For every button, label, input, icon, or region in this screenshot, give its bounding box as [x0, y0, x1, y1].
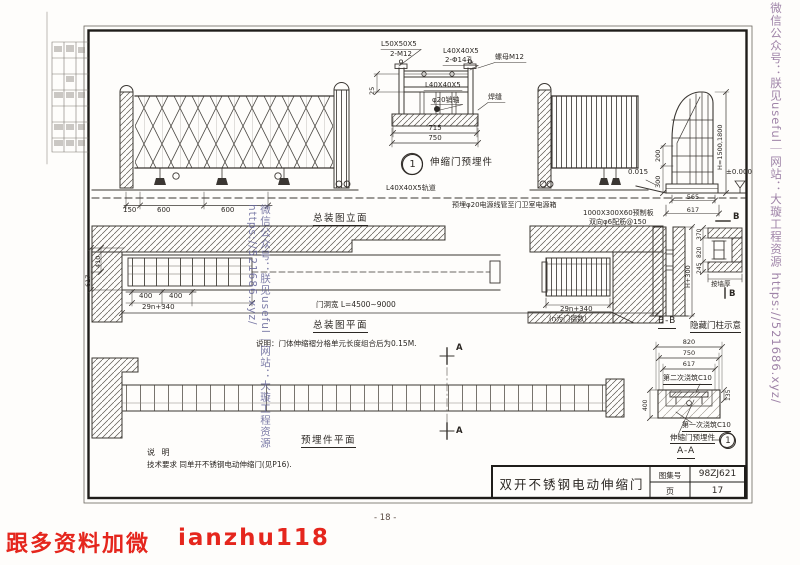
pour-first-label: 第一次浇筑C10	[682, 422, 731, 432]
hidden-post-caption: 隐藏门柱示意	[690, 322, 741, 333]
dim-fold-left: 29n+340	[142, 304, 175, 312]
section-bb-caption: B-B	[658, 317, 676, 329]
page-number-value: 17	[690, 486, 745, 496]
dim-245: 245	[697, 263, 703, 274]
nut-m12-label: 螺母M12	[495, 54, 524, 62]
atlas-number-value: 98ZJ621	[690, 469, 745, 479]
dim-200: 200	[655, 150, 662, 162]
page-label: 页	[650, 486, 690, 497]
plan-note: 说明：门体伸缩褶分格单元长度组合后为0.15M.	[256, 340, 417, 348]
promo-red-text: 跟多资料加微	[6, 526, 150, 558]
dim-h300: H+300	[685, 265, 692, 288]
dim-600-a: 600	[157, 207, 170, 215]
dim-750: 750	[420, 135, 450, 143]
cut-marker-a-top: A	[456, 344, 463, 353]
bolt-m12-label: 2-M12	[390, 51, 412, 59]
aa-callout-number: 1	[725, 436, 730, 446]
cut-marker-b-top: B	[733, 213, 739, 222]
sheet-footer-page: - 18 -	[374, 514, 396, 523]
plan-caption: 总装图平面	[313, 321, 368, 333]
slab-label: 1000X300X60预制板	[583, 210, 654, 218]
dim-750-aa: 750	[674, 350, 704, 357]
dim-height-endpost: H=1500,1800	[717, 125, 724, 170]
conduit-label: 预埋φ20电源线管至门卫室电源箱	[452, 202, 557, 210]
detail-callout-title: 伸缩门预埋件	[430, 158, 493, 168]
detail-callout-number: 1	[409, 159, 415, 170]
notes-heading: 说 明	[147, 449, 172, 458]
level-label: ±0.000	[726, 169, 752, 177]
angle-l40-top-label: L40X40X5	[443, 48, 479, 56]
cut-marker-a-bottom: A	[456, 427, 463, 436]
slope-label: 0.015	[628, 169, 648, 177]
dim-617-endpost: 617	[678, 207, 708, 214]
angle-l40-mid-label: L40X40X5	[425, 82, 461, 90]
dim-150: 150	[123, 207, 136, 215]
dim-617-aa: 617	[674, 361, 704, 368]
aa-callout-circle: 1	[720, 433, 736, 449]
weld-label: 焊缝	[488, 94, 502, 102]
dim-400-a: 400	[139, 293, 152, 301]
drawing-sheet: L50X50X5 2-M12 L40X40X5 2-Φ14孔 螺母M12 L40…	[0, 0, 800, 565]
dim-fold-right: 29n+340	[560, 306, 593, 314]
atlas-number-label: 图集号	[650, 470, 690, 481]
dim-410-plan: 410	[95, 256, 102, 268]
cut-marker-b-bottom: B	[729, 290, 735, 299]
embed-part-label: 伸缩门预埋件	[670, 434, 715, 444]
dim-600-b: 600	[221, 207, 234, 215]
opening-width-label: 门洞宽 L=4500~9000	[316, 301, 396, 309]
holes-phi14-label: 2-Φ14孔	[445, 57, 473, 65]
dim-370: 370	[697, 229, 703, 240]
promo-handle-text: ianzhu118	[178, 525, 330, 551]
angle-l50-label: L50X50X5	[381, 41, 417, 49]
pin-phi20-label: φ20销轴	[432, 97, 460, 105]
drawing-title: 双开不锈钢电动伸缩门	[496, 474, 648, 493]
section-aa-caption: A-A	[677, 447, 695, 459]
dim-400-aa: 400	[643, 400, 649, 411]
dim-820-hidden: 820	[697, 247, 703, 258]
dim-565: 565	[678, 194, 708, 201]
dim-820-aa: 820	[674, 339, 704, 346]
pour-second-label: 第二次浇筑C10	[663, 375, 712, 385]
watermark-left-vertical: 微信公众号：朕见useful｜网站：大璇工程资源 https://521686.…	[246, 204, 273, 565]
embed-plan-caption: 预埋件平面	[301, 436, 356, 448]
dim-135: 135	[726, 390, 732, 401]
dim-300: 300	[655, 176, 662, 188]
detail-callout-circle: 1	[402, 154, 423, 175]
dim-617-plan: 617	[85, 275, 92, 287]
fold-note: (n为门褶数)	[549, 316, 587, 324]
elevation-caption: 总装图立面	[313, 214, 368, 226]
wall-thickness-note: 按墙厚	[711, 281, 731, 288]
slab-rebar-label: 双向φ6配筋@150	[589, 219, 646, 227]
dim-400-b: 400	[169, 293, 182, 301]
track-label: L40X40X5轨道	[386, 185, 436, 193]
dim-25: 25	[369, 87, 376, 95]
dim-715: 715	[420, 125, 450, 133]
watermark-right-vertical: 微信公众号：朕见useful｜网站：大璇工程资源 https://521686.…	[768, 2, 784, 563]
